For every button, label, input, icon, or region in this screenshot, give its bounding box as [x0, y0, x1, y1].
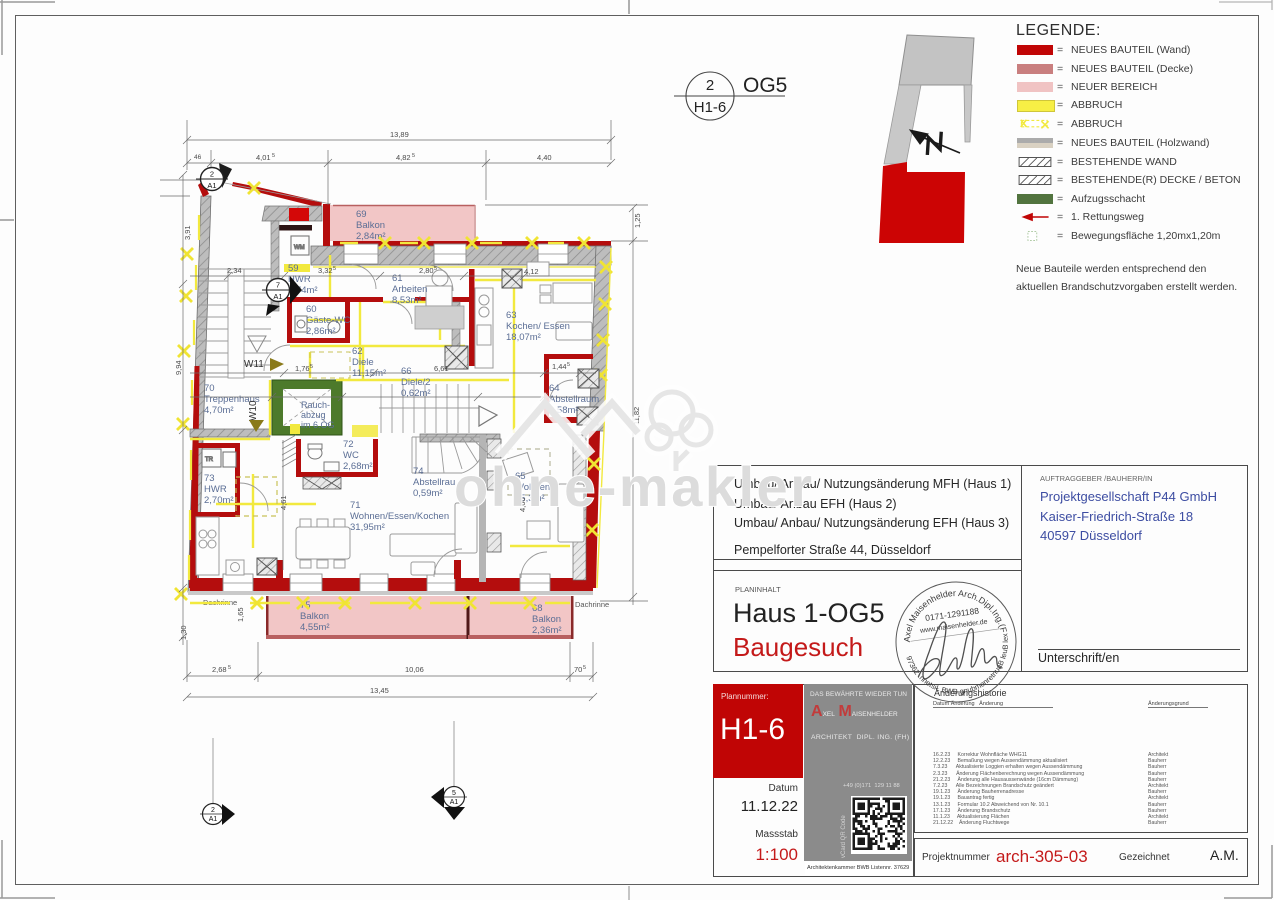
svg-text:Gäste-WC: Gäste-WC: [306, 315, 350, 326]
svg-text:5: 5: [583, 665, 586, 671]
svg-text:OG5: OG5: [743, 74, 787, 97]
svg-text:9,94: 9,94: [174, 360, 183, 375]
svg-text:61: 61: [392, 273, 403, 284]
svg-text:5: 5: [228, 665, 231, 671]
svg-text:63: 63: [506, 310, 517, 321]
svg-text:4,55m²: 4,55m²: [300, 622, 330, 633]
svg-text:1,25: 1,25: [633, 213, 642, 228]
svg-text:46: 46: [194, 154, 202, 161]
svg-text:2,86m²: 2,86m²: [306, 326, 336, 337]
svg-text:0,59m²: 0,59m²: [413, 488, 443, 499]
svg-text:Arbeiten: Arbeiten: [392, 284, 427, 295]
svg-text:H1-6: H1-6: [694, 99, 727, 116]
svg-text:A1: A1: [450, 799, 459, 806]
svg-text:4,70m²: 4,70m²: [204, 405, 234, 416]
svg-text:2,70m²: 2,70m²: [204, 495, 234, 506]
svg-text:ohne-makler: ohne-makler: [454, 455, 815, 518]
svg-text:8,53m²: 8,53m²: [392, 295, 422, 306]
svg-text:2,36m²: 2,36m²: [532, 625, 562, 636]
svg-text:5: 5: [434, 266, 437, 272]
svg-text:3,91: 3,91: [183, 225, 192, 240]
svg-text:Kochen/ Essen: Kochen/ Essen: [506, 321, 570, 332]
svg-text:1,76: 1,76: [295, 364, 310, 373]
svg-text:2: 2: [706, 77, 714, 94]
svg-text:WM: WM: [294, 245, 305, 251]
svg-text:W11: W11: [244, 359, 264, 370]
svg-text:1,65: 1,65: [236, 607, 245, 622]
svg-text:70: 70: [204, 383, 215, 394]
svg-text:70: 70: [574, 665, 582, 674]
svg-text:A1: A1: [207, 181, 216, 190]
svg-text:5: 5: [272, 153, 275, 159]
svg-text:Diele: Diele: [352, 357, 374, 368]
svg-text:10,06: 10,06: [405, 665, 424, 674]
svg-text:5: 5: [333, 266, 336, 272]
svg-text:W10: W10: [248, 400, 259, 421]
svg-text:7: 7: [276, 281, 280, 290]
svg-text:59: 59: [288, 263, 299, 274]
svg-text:13,89: 13,89: [390, 130, 409, 139]
svg-text:1,30: 1,30: [179, 625, 188, 640]
svg-text:13,45: 13,45: [370, 686, 389, 695]
svg-text:4,40: 4,40: [537, 153, 552, 162]
svg-text:4,61: 4,61: [279, 495, 288, 510]
svg-text:WC: WC: [343, 450, 359, 461]
svg-text:2,34: 2,34: [227, 266, 242, 275]
svg-text:66: 66: [401, 366, 412, 377]
svg-text:62: 62: [352, 346, 363, 357]
svg-text:A1: A1: [273, 292, 282, 301]
svg-text:31,95m²: 31,95m²: [350, 522, 385, 533]
svg-text:71: 71: [350, 500, 361, 511]
svg-text:2,80: 2,80: [419, 266, 434, 275]
svg-text:3,32: 3,32: [318, 266, 333, 275]
svg-text:2: 2: [211, 807, 215, 814]
svg-text:Balkon: Balkon: [300, 611, 329, 622]
svg-text:60: 60: [306, 304, 317, 315]
svg-text:73: 73: [204, 473, 215, 484]
svg-text:abzug: abzug: [301, 410, 326, 420]
svg-text:TR: TR: [205, 457, 214, 463]
svg-text:5: 5: [567, 362, 570, 368]
svg-text:6,61: 6,61: [434, 364, 449, 373]
svg-text:A1: A1: [209, 816, 218, 823]
svg-text:5: 5: [452, 790, 456, 797]
svg-text:11,15m²: 11,15m²: [352, 368, 386, 379]
svg-text:5: 5: [310, 364, 313, 370]
svg-text:2,68m²: 2,68m²: [343, 461, 373, 472]
svg-text:2,68: 2,68: [212, 665, 227, 674]
svg-text:72: 72: [343, 439, 354, 450]
svg-text:4,82: 4,82: [396, 153, 411, 162]
svg-text:2: 2: [210, 170, 214, 179]
svg-text:5: 5: [412, 153, 415, 159]
svg-text:Rauch-: Rauch-: [301, 400, 330, 410]
svg-text:1,44: 1,44: [552, 362, 567, 371]
svg-text:Wohnen/Essen/Kochen: Wohnen/Essen/Kochen: [350, 511, 449, 522]
svg-text:HWR: HWR: [204, 484, 227, 495]
svg-text:69: 69: [356, 209, 367, 220]
svg-text:im 6.OG: im 6.OG: [301, 420, 335, 430]
svg-text:Diele/2: Diele/2: [401, 377, 431, 388]
svg-text:74: 74: [413, 466, 424, 477]
svg-text:4,01: 4,01: [256, 153, 271, 162]
svg-text:Balkon: Balkon: [532, 614, 561, 625]
svg-text:18,07m²: 18,07m²: [506, 332, 541, 343]
svg-text:4,12: 4,12: [524, 267, 539, 276]
svg-text:Balkon: Balkon: [356, 220, 385, 231]
